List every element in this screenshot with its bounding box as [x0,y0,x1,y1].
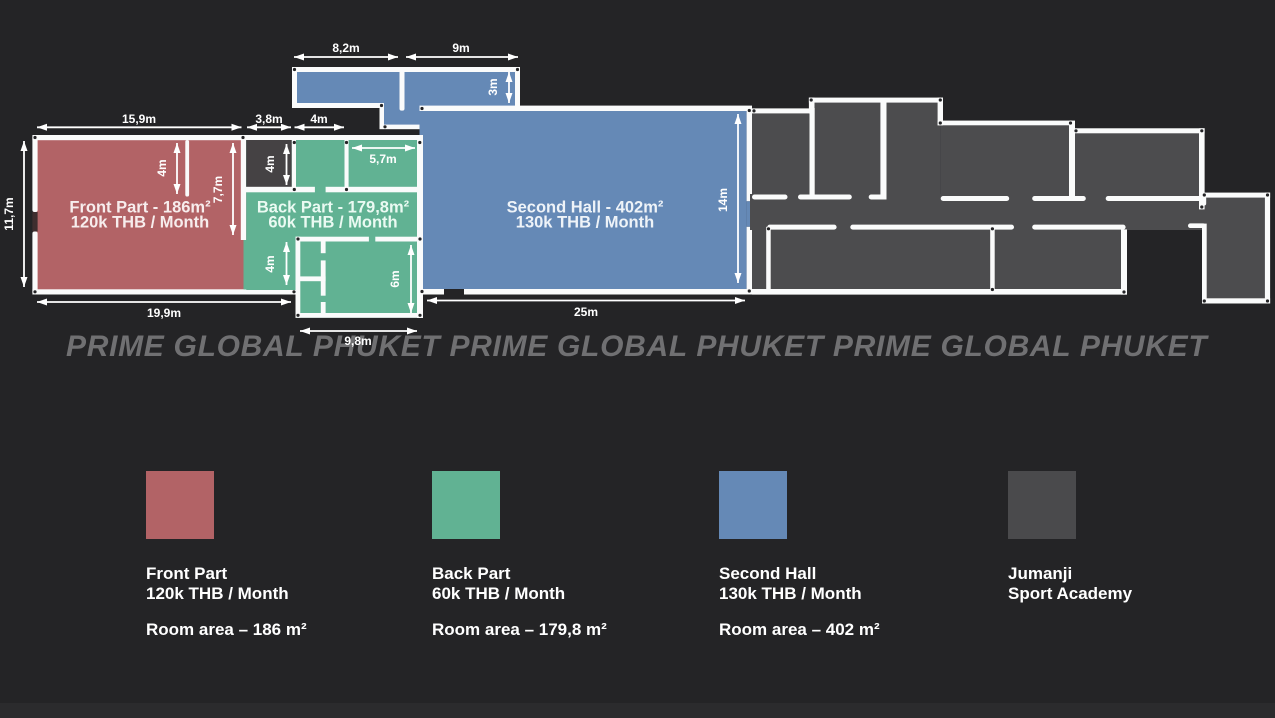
svg-text:120k THB / Month: 120k THB / Month [71,214,209,232]
svg-text:9,8m: 9,8m [344,334,371,348]
svg-text:3,8m: 3,8m [255,112,282,126]
svg-text:4m: 4m [310,112,327,126]
svg-text:3m: 3m [486,78,500,95]
svg-text:11,7m: 11,7m [2,197,16,230]
svg-text:15,9m: 15,9m [122,112,156,126]
svg-text:4m: 4m [155,159,169,176]
svg-text:8,2m: 8,2m [332,41,359,55]
svg-text:130k THB / Month: 130k THB / Month [516,214,654,232]
svg-text:25m: 25m [574,305,598,319]
svg-text:14m: 14m [716,188,730,212]
svg-text:4m: 4m [263,255,277,272]
svg-text:5,7m: 5,7m [369,152,396,166]
svg-text:7,7m: 7,7m [211,176,225,203]
svg-text:9m: 9m [452,41,469,55]
svg-text:19,9m: 19,9m [147,306,181,320]
svg-text:4m: 4m [263,155,277,172]
svg-text:60k THB / Month: 60k THB / Month [268,214,397,232]
svg-text:6m: 6m [388,270,402,287]
